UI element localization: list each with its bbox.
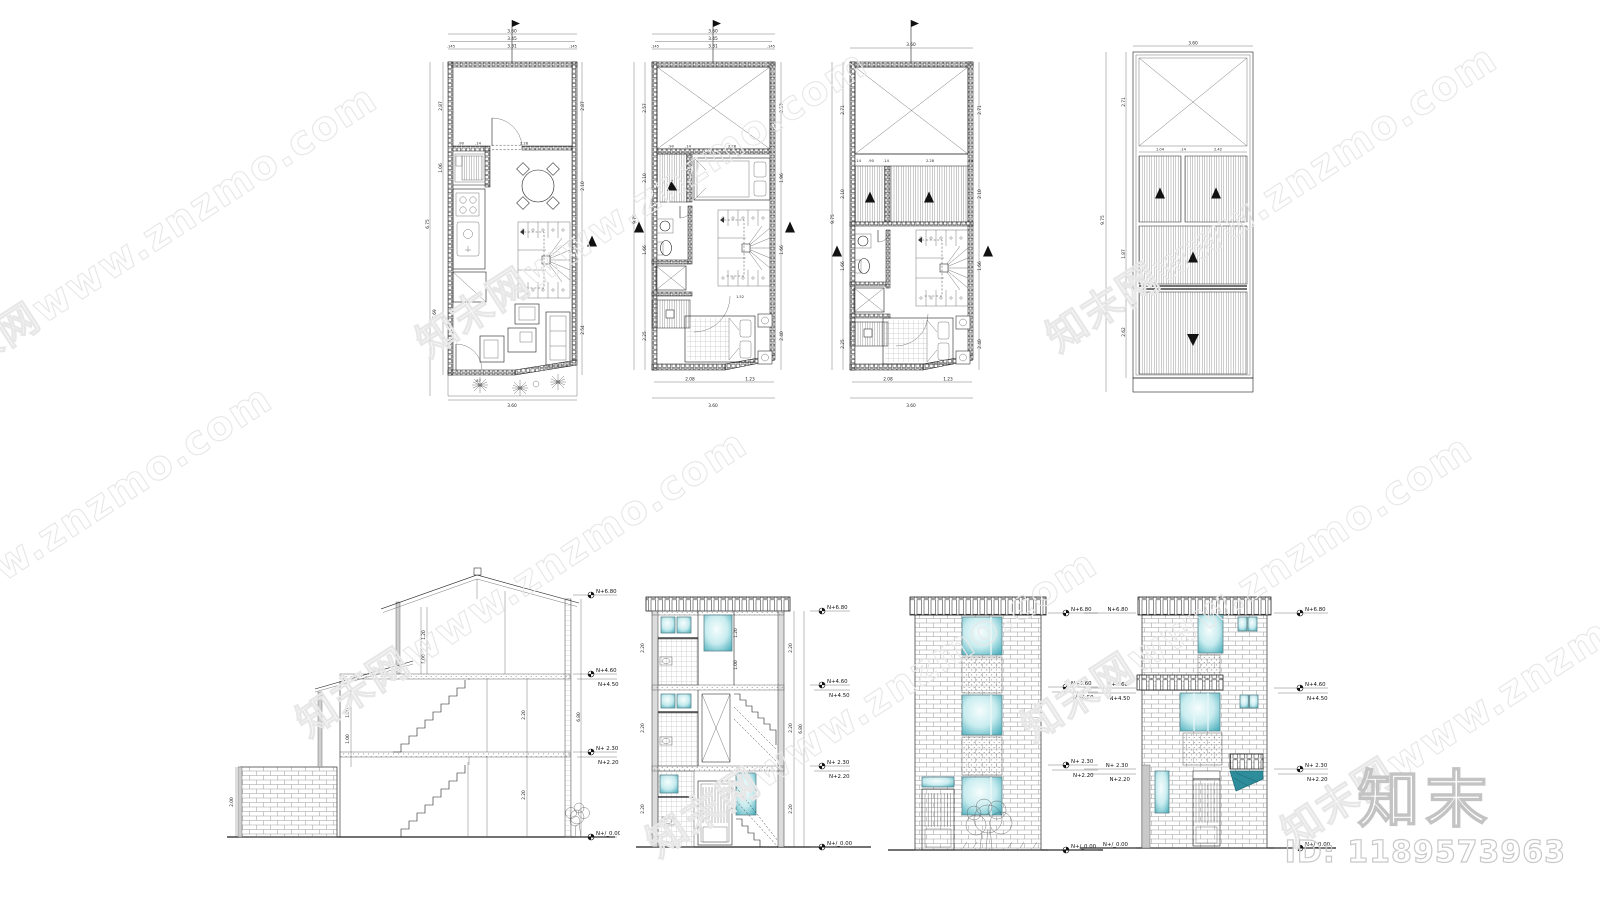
- stair-winder: [518, 222, 570, 298]
- svg-text:2.20: 2.20: [788, 723, 794, 733]
- svg-text:2.71: 2.71: [1121, 97, 1127, 107]
- cut-wall: [778, 611, 784, 847]
- roof-plan: 3.60 1.04 .14 2.42 2.71 9.75 1.87 2.62: [1093, 30, 1263, 415]
- svg-text:1.20: 1.20: [733, 628, 739, 638]
- svg-text:1.66: 1.66: [642, 245, 648, 255]
- svg-text:2.20: 2.20: [521, 790, 527, 800]
- svg-text:3.60: 3.60: [906, 42, 916, 48]
- section-cut-arrow: [785, 222, 795, 233]
- svg-text:.14: .14: [475, 142, 481, 146]
- section-cut-arrow: [983, 246, 993, 257]
- sink: [660, 221, 670, 231]
- svg-text:2.28: 2.28: [728, 145, 737, 149]
- level-labels-left: N+6.80 N+4.60 N+4.50 N+ 2.30 N+2.20 N+/_…: [1084, 607, 1136, 848]
- svg-text:3.60: 3.60: [906, 403, 916, 409]
- window: [1155, 771, 1169, 813]
- svg-text:2.10: 2.10: [580, 181, 586, 191]
- plant-icon: [550, 374, 566, 390]
- cut-wall: [652, 611, 658, 847]
- svg-text:1.20: 1.20: [345, 708, 351, 718]
- svg-text:1.66: 1.66: [977, 261, 983, 271]
- toilet: [859, 259, 870, 274]
- plant-icon: [512, 380, 528, 396]
- nightstand: [956, 351, 970, 364]
- front-elevation: N+6.80 N+4.60 N+4.50 N+ 2.30 N+2.20 N+/_…: [888, 551, 1103, 856]
- svg-text:6.80: 6.80: [798, 724, 804, 734]
- floor-plan-second: 3.60 3.45 .145 3.31 .145 .90 .14 2.28: [630, 14, 800, 414]
- window: [1248, 617, 1257, 631]
- svg-text:2.25: 2.25: [840, 339, 846, 349]
- svg-text:N+4.60: N+4.60: [1305, 682, 1326, 688]
- svg-text:3.60: 3.60: [507, 403, 517, 409]
- window: [1198, 615, 1223, 653]
- window: [1250, 695, 1259, 708]
- svg-text:2.87: 2.87: [580, 101, 586, 111]
- svg-text:2.20: 2.20: [640, 643, 646, 653]
- watermark: 知末网www.znzmo.com: [0, 67, 387, 403]
- window: [704, 615, 732, 651]
- transom-window: [922, 777, 954, 787]
- svg-text:.90: .90: [868, 159, 874, 163]
- svg-text:.14: .14: [855, 159, 861, 163]
- nightstand: [758, 314, 772, 327]
- cad-drawing-sheet: 知末网www.znzmo.com 知末网www.znzmo.com 知末网www…: [0, 0, 1600, 900]
- floor-plan-ground: 3.60 3.45 .145 3.31 .145 .90 .14 2.28: [420, 14, 600, 410]
- svg-text:2.42: 2.42: [1214, 148, 1222, 152]
- svg-text:2.71: 2.71: [977, 105, 983, 115]
- tiled-wall: [658, 713, 698, 766]
- svg-text:2.10: 2.10: [977, 189, 983, 199]
- dim-label: 3.60: [507, 29, 517, 35]
- svg-text:N+/_0.00: N+/_0.00: [827, 841, 853, 847]
- svg-text:2.57: 2.57: [642, 103, 648, 113]
- dim-label: 3.31: [507, 44, 517, 50]
- svg-text:2.10: 2.10: [840, 189, 846, 199]
- svg-text:N+ 2.30: N+ 2.30: [596, 746, 619, 752]
- svg-text:N+/_0.00: N+/_0.00: [596, 831, 620, 837]
- sink: [858, 236, 868, 246]
- window: [1240, 695, 1249, 708]
- floor-slab: [652, 766, 784, 771]
- stair-steps: [736, 819, 766, 847]
- svg-text:N+2.20: N+2.20: [1109, 777, 1130, 783]
- door-swing: [492, 118, 522, 146]
- svg-text:3.60: 3.60: [708, 29, 718, 35]
- svg-text:1.00: 1.00: [421, 654, 427, 664]
- svg-text:2.20: 2.20: [788, 804, 794, 814]
- svg-text:2.87: 2.87: [438, 101, 444, 111]
- svg-text:2.28: 2.28: [520, 142, 529, 146]
- svg-text:2.40: 2.40: [977, 339, 983, 349]
- svg-text:2.71: 2.71: [840, 105, 846, 115]
- svg-text:2.62: 2.62: [1121, 327, 1127, 337]
- svg-text:2.20: 2.20: [788, 643, 794, 653]
- post: [318, 692, 322, 767]
- wall: [448, 62, 577, 67]
- window: [962, 695, 1002, 735]
- dining-table: [517, 163, 560, 210]
- svg-text:2.54: 2.54: [580, 325, 586, 335]
- dim-label: .145: [447, 45, 455, 49]
- ridge-cap: [474, 568, 481, 575]
- svg-text:N+6.80: N+6.80: [827, 605, 848, 611]
- svg-text:N+6.80: N+6.80: [1305, 607, 1326, 613]
- svg-text:N+ 2.30: N+ 2.30: [827, 760, 850, 766]
- svg-text:1.52: 1.52: [736, 295, 744, 299]
- svg-text:1.87: 1.87: [1121, 249, 1127, 259]
- svg-text:N+2.20: N+2.20: [598, 760, 619, 766]
- svg-text:3.60: 3.60: [708, 403, 718, 409]
- svg-text:1.00: 1.00: [345, 734, 351, 744]
- stair-winder: [916, 230, 968, 306]
- balcony-parapet: [1137, 675, 1223, 690]
- svg-text:N+4.60: N+4.60: [827, 679, 848, 685]
- svg-text:.145: .145: [767, 45, 775, 49]
- floor-plan-third: 3.60 .14 .90 .14 2.28 .14: [828, 14, 998, 414]
- svg-text:1.04: 1.04: [1156, 148, 1165, 152]
- site-brand: 知末 ID: 1189573963: [1285, 769, 1566, 870]
- svg-text:6.75: 6.75: [425, 219, 431, 229]
- svg-text:2.20: 2.20: [640, 723, 646, 733]
- spandrel-panel: [962, 657, 1002, 693]
- svg-text:.14: .14: [685, 145, 691, 149]
- svg-text:2.08: 2.08: [883, 377, 893, 383]
- stair-flight-hatch: [657, 154, 687, 202]
- svg-text:.14: .14: [967, 159, 973, 163]
- svg-text:N+4.60: N+4.60: [1107, 682, 1128, 688]
- svg-text:N+ 2.30: N+ 2.30: [1106, 763, 1129, 769]
- window: [1238, 617, 1247, 631]
- coffee-table: [508, 328, 536, 352]
- svg-text:2.00: 2.00: [229, 797, 235, 807]
- svg-text:N+6.80: N+6.80: [1107, 607, 1128, 613]
- nightstand: [956, 316, 970, 329]
- door-transom: [1193, 771, 1220, 779]
- site-logo: 知末: [1285, 769, 1566, 831]
- floor-slab: [340, 674, 570, 679]
- window: [661, 617, 675, 633]
- svg-text:N+4.50: N+4.50: [598, 682, 619, 688]
- sofa: [546, 312, 570, 366]
- stair-steps: [734, 694, 776, 745]
- svg-text:1.00: 1.00: [733, 660, 739, 670]
- svg-text:2.10: 2.10: [642, 173, 648, 183]
- svg-text:N+4.50: N+4.50: [1307, 696, 1328, 702]
- svg-text:3.31: 3.31: [708, 44, 718, 50]
- garden-brick-wall: [240, 767, 337, 837]
- double-bed: [883, 318, 953, 364]
- dim-label: .145: [569, 45, 577, 49]
- spandrel-panel: [1183, 733, 1222, 765]
- svg-text:.87: .87: [475, 379, 481, 383]
- svg-text:N+/_0.00: N+/_0.00: [1103, 842, 1129, 848]
- svg-text:N+4.60: N+4.60: [596, 668, 617, 674]
- window: [1180, 693, 1220, 731]
- svg-text:2.40: 2.40: [779, 331, 785, 341]
- svg-text:1.06: 1.06: [438, 163, 444, 173]
- svg-text:.90: .90: [668, 145, 674, 149]
- double-bed: [685, 316, 755, 362]
- svg-text:9.75: 9.75: [830, 214, 836, 224]
- level-markers: N+6.80 N+4.60 N+4.50 N+ 2.30 N+2.20 N+/_…: [810, 605, 853, 850]
- svg-text:N+4.50: N+4.50: [829, 693, 850, 699]
- cut-wall: [565, 599, 571, 837]
- svg-text:1.66: 1.66: [840, 261, 846, 271]
- svg-text:1.23: 1.23: [745, 377, 755, 383]
- section-cut-arrow: [587, 236, 597, 247]
- svg-text:9.75: 9.75: [632, 214, 638, 224]
- stair-winder: [718, 210, 770, 286]
- parapet: [646, 597, 790, 611]
- svg-text:.145: .145: [651, 45, 659, 49]
- svg-text:2.28: 2.28: [926, 159, 935, 163]
- window: [661, 694, 675, 708]
- section-longitudinal: N+6.80 N+4.60 N+4.50 N+ 2.30 N+2.20 N+/_…: [225, 555, 620, 860]
- window: [962, 617, 1002, 655]
- floor-slab: [340, 752, 570, 757]
- toilet: [661, 241, 672, 256]
- svg-text:2.20: 2.20: [640, 804, 646, 814]
- tiled-wall: [658, 639, 698, 685]
- svg-text:2.20: 2.20: [521, 710, 527, 720]
- svg-text:5.69: 5.69: [432, 309, 438, 319]
- single-bed: [694, 158, 770, 200]
- svg-text:.14: .14: [1180, 148, 1186, 152]
- stair-flight: [393, 765, 465, 837]
- section-cut-arrow: [832, 246, 842, 257]
- svg-text:2.57: 2.57: [779, 103, 785, 113]
- svg-text:3.60: 3.60: [1188, 41, 1198, 47]
- svg-text:N+2.20: N+2.20: [829, 774, 850, 780]
- svg-text:N+6.80: N+6.80: [596, 589, 617, 595]
- section-cross: 2.20 2.20 2.20 6.80 1.20 1.00 2.20 2.20 …: [636, 551, 876, 856]
- svg-text:N+4.50: N+4.50: [1109, 696, 1130, 702]
- parapet: [1230, 754, 1263, 769]
- svg-text:.90: .90: [458, 142, 464, 146]
- stair-flight: [393, 680, 465, 752]
- window: [660, 775, 678, 793]
- svg-text:.14: .14: [883, 159, 889, 163]
- svg-text:3.45: 3.45: [708, 36, 718, 42]
- floor-slab: [652, 685, 784, 690]
- spandrel-panel: [962, 737, 1002, 775]
- kitchen-counter: [453, 189, 485, 269]
- parapet: [910, 597, 1046, 615]
- svg-text:2.08: 2.08: [685, 377, 695, 383]
- roof-panel: [1139, 292, 1247, 374]
- nightstand: [758, 351, 772, 364]
- drawing-id: ID: 1189573963: [1285, 835, 1566, 870]
- window: [677, 617, 691, 633]
- svg-text:2.25: 2.25: [642, 331, 648, 341]
- dim-label: 3.45: [507, 36, 517, 42]
- svg-text:1.66: 1.66: [779, 245, 785, 255]
- window: [677, 694, 691, 708]
- svg-text:9.75: 9.75: [1100, 215, 1106, 225]
- parapet: [1138, 597, 1271, 615]
- svg-text:1.20: 1.20: [421, 630, 427, 640]
- svg-text:1.23: 1.23: [943, 377, 953, 383]
- svg-text:1.96: 1.96: [779, 173, 785, 183]
